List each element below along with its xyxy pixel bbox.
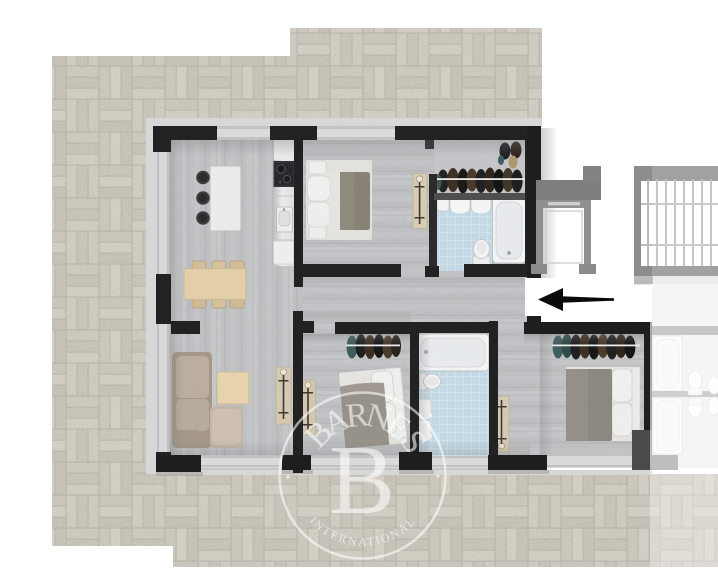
svg-text:B: B — [329, 426, 395, 535]
